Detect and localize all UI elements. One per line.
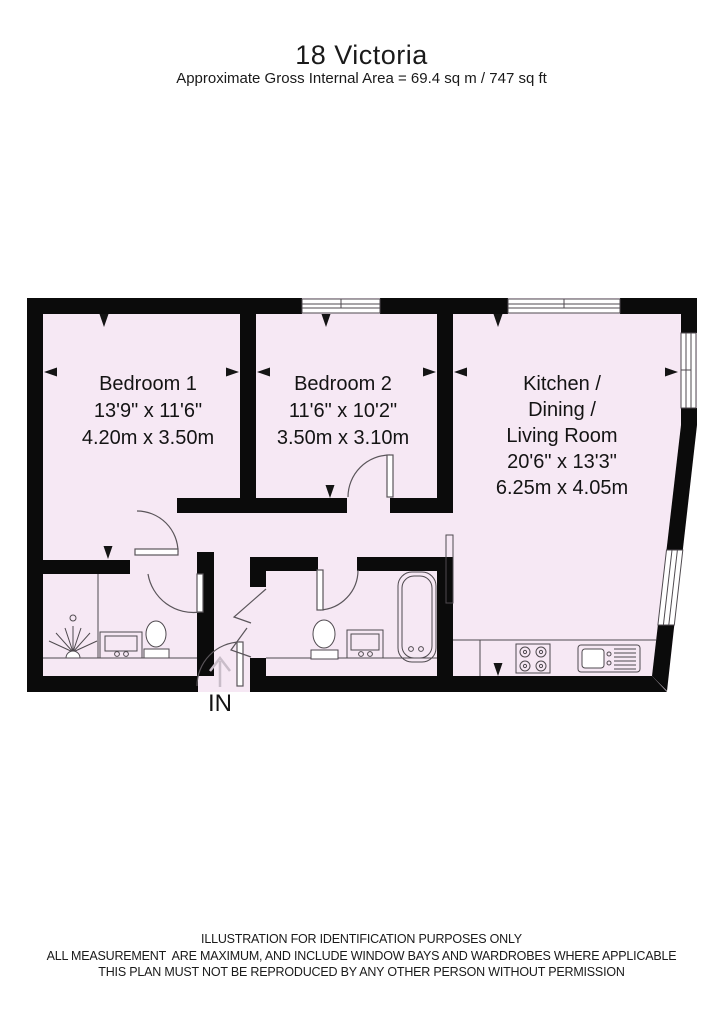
entrance-label: IN (170, 690, 270, 718)
room-label-bedroom2: Bedroom 2 11'6" x 10'2" 3.50m x 3.10m (243, 371, 443, 452)
room-label-kitchen: Kitchen / Dining / Living Room 20'6" x 1… (462, 371, 662, 501)
room-label-bedroom1: Bedroom 1 13'9" x 11'6" 4.20m x 3.50m (48, 371, 248, 452)
room-dim-metric: 6.25m x 4.05m (462, 475, 662, 501)
disclaimer-line: ILLUSTRATION FOR IDENTIFICATION PURPOSES… (0, 931, 723, 948)
disclaimer-line: THIS PLAN MUST NOT BE REPRODUCED BY ANY … (0, 964, 723, 981)
window-kitchen-right-upper (681, 333, 696, 408)
floorplan-drawing (0, 0, 723, 1024)
room-name: Bedroom 1 (48, 371, 248, 398)
window-bedroom2-top (302, 299, 380, 313)
room-dim-metric: 3.50m x 3.10m (243, 425, 443, 452)
room-dim-imperial: 20'6" x 13'3" (462, 449, 662, 475)
room-name: Kitchen / (462, 371, 662, 397)
disclaimer: ILLUSTRATION FOR IDENTIFICATION PURPOSES… (0, 931, 723, 981)
window-kitchen-top (508, 299, 620, 313)
room-dim-imperial: 11'6" x 10'2" (243, 398, 443, 425)
room-dim-metric: 4.20m x 3.50m (48, 425, 248, 452)
floorplan-page: 18 Victoria Approximate Gross Internal A… (0, 0, 723, 1024)
room-name: Living Room (462, 423, 662, 449)
disclaimer-line: ALL MEASUREMENT ARE MAXIMUM, AND INCLUDE… (0, 948, 723, 965)
room-name: Dining / (462, 397, 662, 423)
room-name: Bedroom 2 (243, 371, 443, 398)
room-dim-imperial: 13'9" x 11'6" (48, 398, 248, 425)
